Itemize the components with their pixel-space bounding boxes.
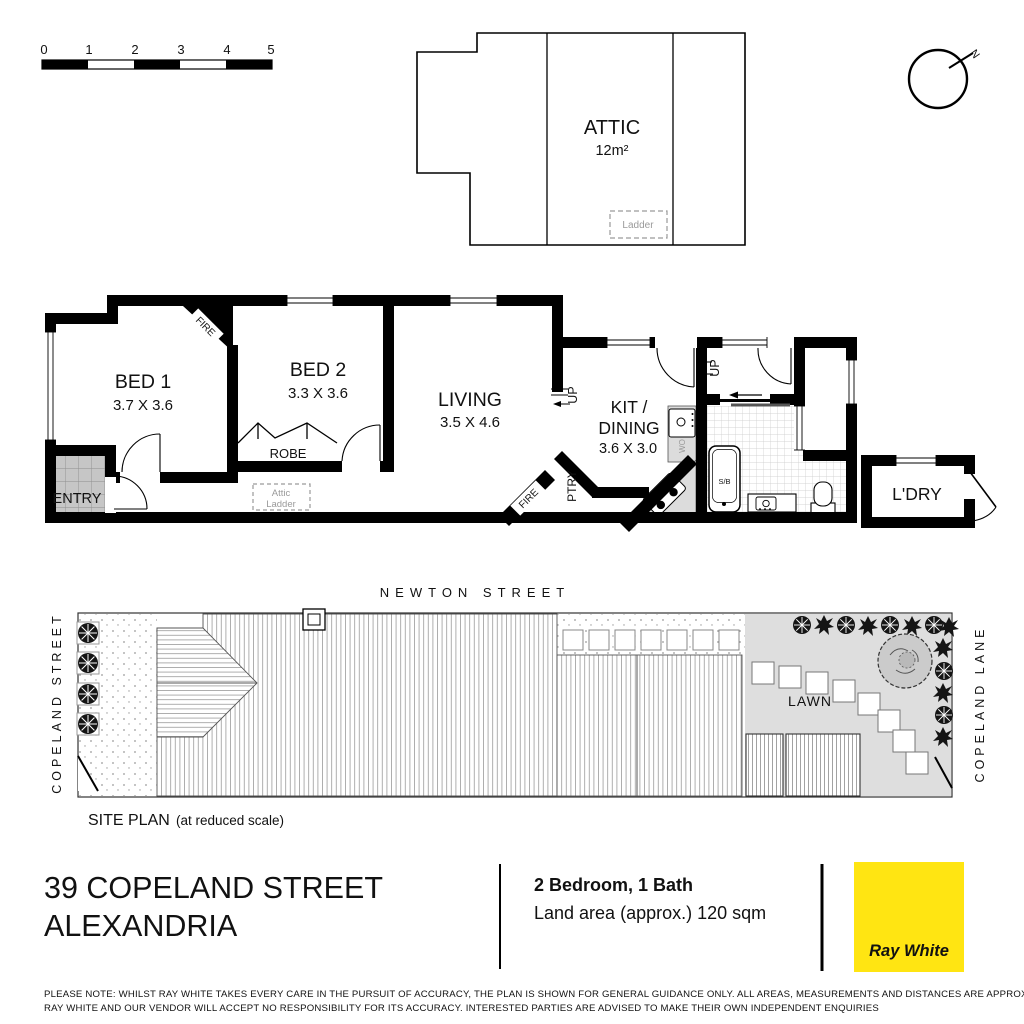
window-bed2-north: [287, 295, 333, 306]
scale-tick-2: 2: [131, 42, 138, 57]
rear-roof: [557, 655, 742, 796]
north-indicator: N: [909, 48, 982, 108]
window-east: [846, 360, 857, 404]
floorplan-sheet: 0 1 2 3 4 5 ATTIC 12m² Ladder N: [0, 0, 1024, 1024]
disclaimer: PLEASE NOTE: WHILST RAY WHITE TAKES EVER…: [44, 989, 1024, 1014]
label-attic-ladder-1: Attic: [272, 488, 291, 499]
vanity: [748, 494, 796, 512]
room-label-entry: ENTRY: [53, 491, 102, 507]
label-lawn: LAWN: [788, 693, 832, 709]
address-line1: 39 COPELAND STREET: [44, 871, 383, 905]
rear-sheds: [746, 734, 860, 796]
window-kitchen-north: [607, 337, 650, 348]
site-plan-title: SITE PLAN: [88, 812, 170, 829]
disclaimer-line2: RAY WHITE AND OUR VENDOR WILL ACCEPT NO …: [44, 1003, 879, 1014]
attic-room-label: ATTIC: [584, 117, 640, 139]
room-label-laundry: L'DRY: [892, 484, 942, 504]
floor-plan: FIRE FIRE L'DRY BED 1: [45, 295, 996, 532]
bed-bath-summary: 2 Bedroom, 1 Bath: [534, 875, 693, 895]
attic-plan: ATTIC 12m² Ladder: [417, 33, 745, 245]
side-niche: [805, 406, 846, 450]
room-dims-living: 3.5 X 4.6: [440, 414, 500, 431]
label-attic-ladder-2: Ladder: [266, 499, 296, 510]
ray-white-logo: Ray White: [854, 862, 964, 972]
rear-door: [758, 348, 791, 384]
attic-area-label: 12m²: [595, 143, 628, 159]
label-robe: ROBE: [270, 446, 307, 461]
fire-label-living: FIRE: [510, 480, 545, 515]
bed2-door: [342, 425, 380, 461]
label-up-porch: UP: [708, 359, 722, 376]
label-pantry: PTRY: [565, 470, 579, 502]
floorplan-drawing: 0 1 2 3 4 5 ATTIC 12m² Ladder N: [0, 0, 1024, 1024]
scale-bar: 0 1 2 3 4 5: [40, 42, 274, 69]
window-bath-niche: [794, 406, 805, 450]
laundry-outbuilding: L'DRY: [861, 455, 996, 528]
address-line2: ALEXANDRIA: [44, 909, 238, 943]
north-label: N: [967, 48, 981, 61]
bed1-door: [122, 434, 160, 472]
brand-name: Ray White: [869, 942, 949, 960]
disclaimer-line1: PLEASE NOTE: WHILST RAY WHITE TAKES EVER…: [44, 989, 1024, 1000]
label-shower-bath: S/B: [718, 477, 730, 486]
room-label-kitchen-1: KIT /: [611, 397, 648, 417]
label-up-living: UP: [566, 386, 580, 403]
attic-ladder-label: Ladder: [622, 220, 654, 231]
room-label-kitchen-2: DINING: [598, 418, 659, 438]
scale-tick-4: 4: [223, 42, 230, 57]
lane-label-copeland: COPELAND LANE: [973, 626, 987, 783]
room-dims-bed1: 3.7 X 3.6: [113, 397, 173, 414]
site-plan-title-note: (at reduced scale): [176, 813, 284, 828]
backyard-tree: [878, 634, 932, 688]
scale-tick-0: 0: [40, 42, 47, 57]
room-label-bed1: BED 1: [115, 371, 171, 393]
label-wall-oven: WO: [678, 439, 687, 453]
chimney: [303, 609, 325, 630]
kitchen-door: [657, 348, 694, 387]
robe-rail: [238, 423, 337, 443]
street-label-copeland: COPELAND STREET: [50, 612, 64, 794]
street-label-newton: NEWTON STREET: [380, 585, 570, 600]
side-path-pavers: [563, 630, 739, 650]
compass-circle: [909, 50, 967, 108]
room-dims-kitchen: 3.6 X 3.0: [599, 441, 657, 457]
window-porch-north: [722, 337, 767, 348]
scale-tick-1: 1: [85, 42, 92, 57]
toilet: [811, 482, 835, 513]
room-label-living: LIVING: [438, 389, 502, 411]
window-bed1-west: [45, 332, 56, 440]
window-living-north: [450, 295, 497, 306]
land-area: Land area (approx.) 120 sqm: [534, 903, 766, 923]
kitchen-sink: [669, 409, 695, 437]
scale-tick-5: 5: [267, 42, 274, 57]
room-label-bed2: BED 2: [290, 359, 346, 381]
site-plan: NEWTON STREET COPELAND STREET COPELAND L…: [50, 585, 987, 829]
room-dims-bed2: 3.3 X 3.6: [288, 385, 348, 402]
scale-tick-3: 3: [177, 42, 184, 57]
footer: 39 COPELAND STREET ALEXANDRIA 2 Bedroom,…: [44, 862, 964, 972]
